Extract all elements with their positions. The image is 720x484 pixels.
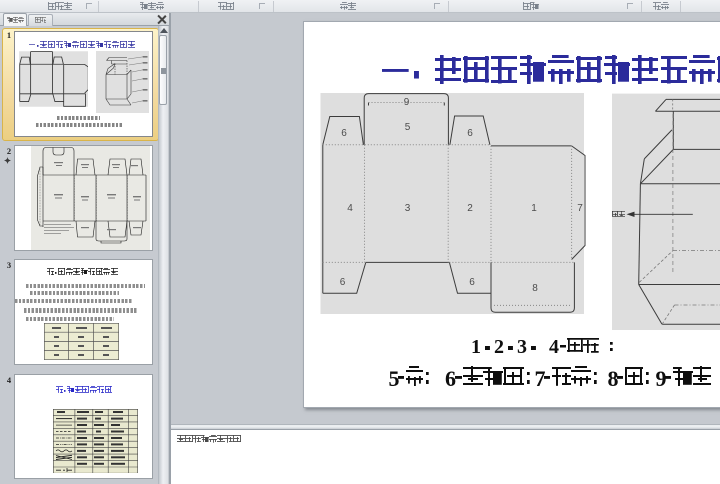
svg-text:4: 4	[347, 203, 353, 214]
svg-text:2: 2	[467, 203, 473, 214]
svg-text:7: 7	[577, 203, 583, 214]
svg-text:6: 6	[341, 128, 347, 139]
svg-text:5: 5	[405, 122, 411, 133]
svg-text:6: 6	[340, 277, 346, 288]
svg-text:6: 6	[467, 128, 473, 139]
svg-text:8: 8	[532, 283, 538, 294]
svg-text:9: 9	[404, 97, 410, 108]
svg-text:3: 3	[405, 203, 411, 214]
svg-text:1: 1	[531, 203, 537, 214]
svg-text:6: 6	[469, 277, 475, 288]
